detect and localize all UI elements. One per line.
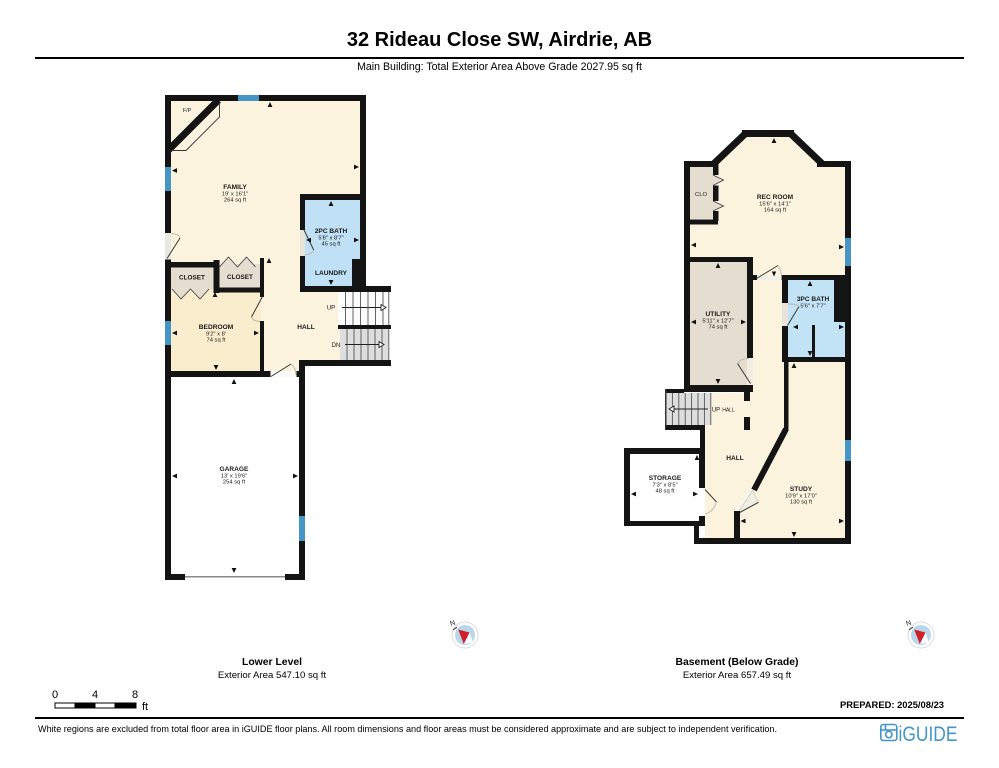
svg-text:5'6" x 7'7": 5'6" x 7'7"	[800, 304, 825, 310]
svg-text:74 sq ft: 74 sq ft	[206, 338, 225, 344]
svg-text:CLOSET: CLOSET	[179, 275, 205, 282]
svg-text:164 sq ft: 164 sq ft	[764, 208, 787, 214]
svg-text:iGUIDE: iGUIDE	[899, 723, 958, 746]
svg-text:UTILITY: UTILITY	[706, 311, 732, 318]
svg-text:254 sq ft: 254 sq ft	[223, 480, 246, 486]
svg-text:CLO: CLO	[695, 192, 707, 198]
svg-text:GARAGE: GARAGE	[220, 466, 250, 473]
svg-text:STUDY: STUDY	[790, 486, 813, 493]
svg-text:74 sq ft: 74 sq ft	[708, 325, 727, 331]
svg-text:8: 8	[132, 689, 138, 701]
svg-text:0: 0	[52, 689, 58, 701]
svg-text:UP: UP	[712, 408, 720, 414]
svg-text:LAUNDRY: LAUNDRY	[315, 270, 348, 277]
svg-text:BEDROOM: BEDROOM	[199, 324, 234, 331]
svg-text:264 sq ft: 264 sq ft	[224, 198, 247, 204]
svg-text:FAMILY: FAMILY	[223, 184, 247, 191]
svg-text:HALL: HALL	[297, 324, 315, 331]
svg-text:4: 4	[92, 689, 98, 701]
svg-text:ft: ft	[142, 701, 148, 713]
svg-text:F/P: F/P	[183, 108, 192, 114]
svg-text:DN: DN	[332, 343, 341, 349]
svg-text:3PC BATH: 3PC BATH	[797, 296, 830, 303]
svg-text:130 sq ft: 130 sq ft	[790, 500, 813, 506]
svg-text:HALL: HALL	[722, 408, 735, 414]
svg-text:HALL: HALL	[726, 455, 744, 462]
svg-text:2PC BATH: 2PC BATH	[315, 228, 348, 235]
svg-text:UP: UP	[327, 306, 335, 312]
svg-text:48 sq ft: 48 sq ft	[655, 489, 674, 495]
svg-text:CLOSET: CLOSET	[227, 274, 253, 281]
svg-text:REC ROOM: REC ROOM	[757, 194, 794, 201]
svg-text:STORAGE: STORAGE	[649, 475, 682, 482]
svg-text:45 sq ft: 45 sq ft	[321, 242, 340, 248]
